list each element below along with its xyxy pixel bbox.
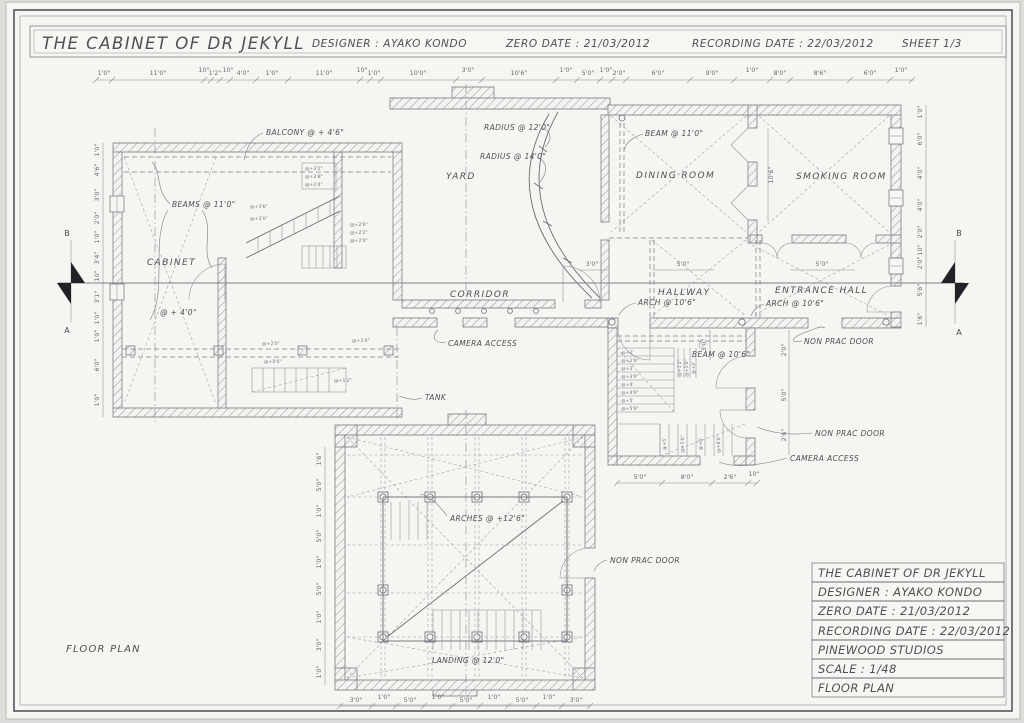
level-note: @+2'6" [621,358,639,364]
note-level4: @ + 4'0" [160,308,197,317]
dim-label: 4'0" [917,167,924,180]
dim-label: 1'6" [917,313,924,326]
dim-label: 8'0" [774,70,787,77]
note-beam-106: BEAM @ 10'6" [692,350,750,359]
title-block-row: ZERO DATE : 21/03/2012 [817,604,970,618]
footer-floor-plan-label: FLOOR PLAN [66,644,141,655]
dim-label: 1'0" [378,694,391,701]
dim-label: 1'6" [316,453,323,466]
level-note: @+2'2" [350,230,368,236]
room-label-cabinet: CABINET [147,258,196,268]
dim-label: 3'0" [94,189,101,202]
note-camera-access-1: CAMERA ACCESS [448,339,517,348]
dim-label: 3'0" [316,639,323,652]
level-note: @+5' [662,438,668,451]
dim-label: 1'0" [94,144,101,157]
level-note: @+2'0" [262,341,280,347]
dim-label: 5'6" [917,284,924,297]
note-radius-14: RADIUS @ 14'0" [480,152,546,161]
dim-label: 1'2" [209,70,222,77]
scanned-drawing-sheet: THE CABINET OF DR JEKYLL DESIGNER : AYAK… [0,0,1024,723]
dim-label: 10" [917,244,924,255]
level-note: @+1'6" [352,338,370,344]
dim-label: 3'0" [350,697,363,704]
dim-label: 5'0" [316,583,323,596]
dim-label: 1'0" [560,67,573,74]
title-block-row: RECORDING DATE : 22/03/2012 [818,624,1010,638]
dim-label: 1'0" [316,505,323,518]
level-note: @+2'6" [350,222,368,228]
level-note: @+3'6" [621,374,639,380]
section-label-a-right: A [956,328,962,337]
recording-date-label: RECORDING DATE : 22/03/2012 [692,38,874,50]
note-non-prac-2: NON PRAC DOOR [815,429,885,438]
dim-label: 1'0" [488,694,501,701]
level-note: @+3'0" [250,216,268,222]
level-note: @+2'4" [305,182,323,188]
dim-label: 1'0" [94,312,101,325]
level-note: @+1'2" [677,359,683,377]
level-note: @+5'6" [680,435,686,453]
level-note: @+3'6" [250,204,268,210]
dim-label: 1'0" [600,67,613,74]
level-note: @+2' [691,362,697,375]
level-note: @+0'6" [264,359,282,365]
level-note: @+3' [621,366,634,372]
room-label-dining: DINING ROOM [636,171,715,181]
header-title-bar: THE CABINET OF DR JEKYLL DESIGNER : AYAK… [30,26,1006,57]
note-non-prac-3: NON PRAC DOOR [610,556,680,565]
note-balcony: BALCONY @ + 4'6" [266,128,344,137]
note-arch-entrance: ARCH @ 10'6" [765,299,824,308]
dim-label: 4'0" [237,70,250,77]
dim-label: 5'0" [634,474,647,481]
note-arches: ARCHES @ +12'6" [449,514,525,523]
note-beam-11: BEAM @ 11'0" [645,129,703,138]
dim-label: 5'0" [582,70,595,77]
title-block-row: PINEWOOD STUDIOS [818,643,944,657]
title-block-row: DESIGNER : AYAKO KONDO [818,585,982,599]
dim-label: 8'0" [681,474,694,481]
level-note: @+1'6" [684,359,690,377]
level-note: @+5'6" [621,406,639,412]
dim-label: 1'0" [368,70,381,77]
dim-label: 6'0" [652,70,665,77]
dim-label: 1'0" [94,231,101,244]
dim-label: 6'0" [94,359,101,372]
level-note: @+4'6" [621,390,639,396]
dim-label: 3'0" [586,261,599,268]
dim-label: 10'0" [410,70,427,77]
dim-label: 2'0" [613,70,626,77]
dim-label: 11'0" [316,70,333,77]
note-non-prac-1: NON PRAC DOOR [804,337,874,346]
zero-date-label: ZERO DATE : 21/03/2012 [505,38,650,50]
dim-label: 1'0" [98,70,111,77]
dim-label: 3'1" [94,291,101,304]
level-note: @+2' [621,350,634,356]
dim-label: 2'0" [781,344,788,357]
room-label-entrance: ENTRANCE HALL [775,286,868,296]
sheet-title: THE CABINET OF DR JEKYLL [42,34,305,53]
section-label-b-right: B [956,229,962,238]
dim-label: 1'0" [917,106,924,119]
floor-plan-drawing: THE CABINET OF DR JEKYLL DESIGNER : AYAK… [0,0,1024,723]
level-note: @+1'2" [334,378,352,384]
dim-label: 10" [223,67,234,74]
dim-label: 6'0" [864,70,877,77]
dim-label: 1'0" [543,694,556,701]
dim-label: 1'0" [316,611,323,624]
level-note: @+2'0" [350,238,368,244]
level-note: @+5' [621,398,634,404]
dim-label: 1'0" [266,70,279,77]
dim-label: 8'6" [814,70,827,77]
title-block: THE CABINET OF DR JEKYLL DESIGNER : AYAK… [812,563,1010,697]
dim-label: 2'6" [724,474,737,481]
note-beams-11: BEAMS @ 11'0" [172,200,236,209]
dim-label: 4'0" [917,199,924,212]
room-label-hallway: HALLWAY [658,288,711,298]
room-label-smoking: SMOKING ROOM [796,172,887,182]
note-arch-hall: ARCH @ 10'6" [637,298,696,307]
dim-label: 2'0" [94,212,101,225]
dim-label: 1'0" [94,394,101,407]
dim-label: 10'6" [768,167,775,184]
dim-label: 5'0" [677,261,690,268]
note-landing: LANDING @ 12'0" [432,656,504,665]
dim-label: 5'0" [316,479,323,492]
note-tank: TANK [425,393,447,402]
level-note: @+2'8" [305,174,323,180]
dim-label: 9'0" [706,70,719,77]
room-label-corridor: CORRIDOR [450,290,510,300]
dim-label: 10" [94,270,101,281]
dim-label: 1'0" [895,67,908,74]
title-block-row: THE CABINET OF DR JEKYLL [818,566,986,580]
title-block-row: SCALE : 1/48 [818,662,897,676]
room-label-yard: YARD [446,172,476,182]
dim-label: 11'0" [150,70,167,77]
dim-label: 10" [749,471,760,478]
section-label-b-left: B [64,229,70,238]
dim-label: 5'0" [781,389,788,402]
note-camera-access-2: CAMERA ACCESS [790,454,859,463]
dim-label: 5'0" [460,697,473,704]
dim-label: 5'0" [516,697,529,704]
dim-label: 4'6" [94,164,101,177]
dim-label: 5'0" [816,261,829,268]
dim-label: 2'0" [917,257,924,270]
dim-label: 2'0" [917,226,924,239]
note-radius-12: RADIUS @ 12'0" [484,123,550,132]
section-label-a-left: A [64,326,70,335]
level-note: @+6'6" [716,435,722,453]
dim-label: 3'0" [570,697,583,704]
dim-label: 3'4" [94,252,101,265]
designer-label: DESIGNER : AYAKO KONDO [312,38,467,50]
dim-label: 1'0" [432,694,445,701]
dim-label: 1'0" [746,67,759,74]
dim-label: 1'0" [94,330,101,343]
dim-label: 5'0" [316,530,323,543]
dim-label: 1'0" [316,556,323,569]
dim-label: 3'0" [462,67,475,74]
dim-label: 6'0" [917,133,924,146]
sheet-number-label: SHEET 1/3 [902,38,962,50]
dim-label: 1'0" [316,666,323,679]
level-note: @+3'2" [305,166,323,172]
level-note: @+6' [698,438,704,451]
dim-label: 2'6" [781,429,788,442]
dim-label: 5'0" [404,697,417,704]
dim-label: 10" [357,67,368,74]
title-block-row: FLOOR PLAN [818,681,894,695]
level-note: @+4' [621,382,634,388]
dim-label: 10'6" [511,70,528,77]
